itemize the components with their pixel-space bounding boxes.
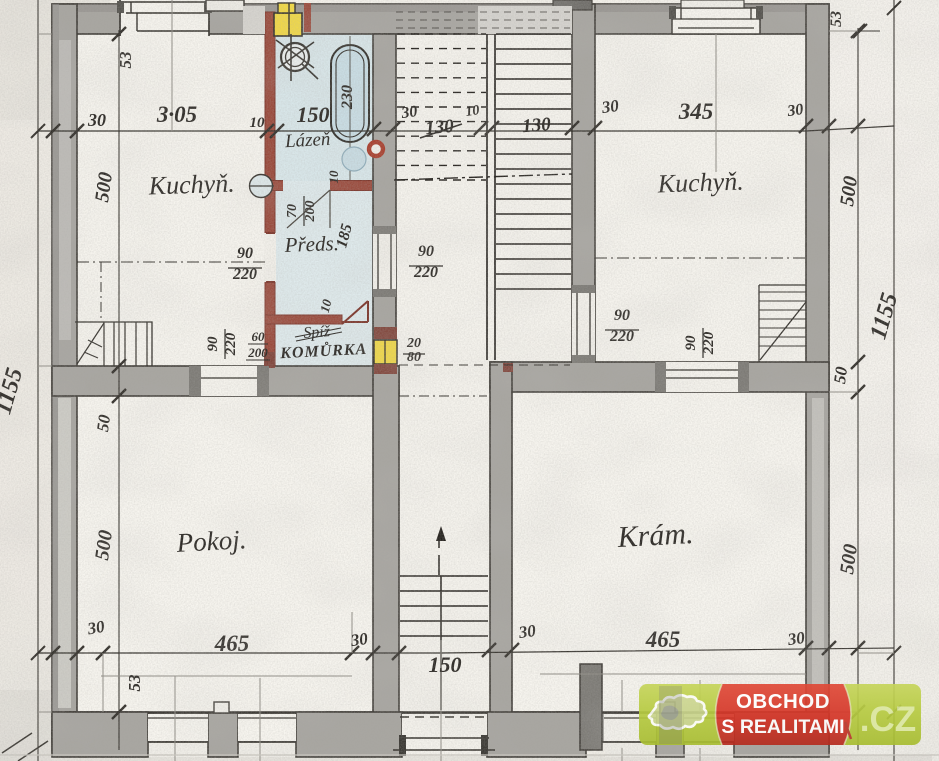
svg-text:OBCHOD: OBCHOD [736,690,830,713]
svg-text:.CZ: .CZ [860,700,916,739]
svg-text:S REALITAMI: S REALITAMI [721,716,844,738]
